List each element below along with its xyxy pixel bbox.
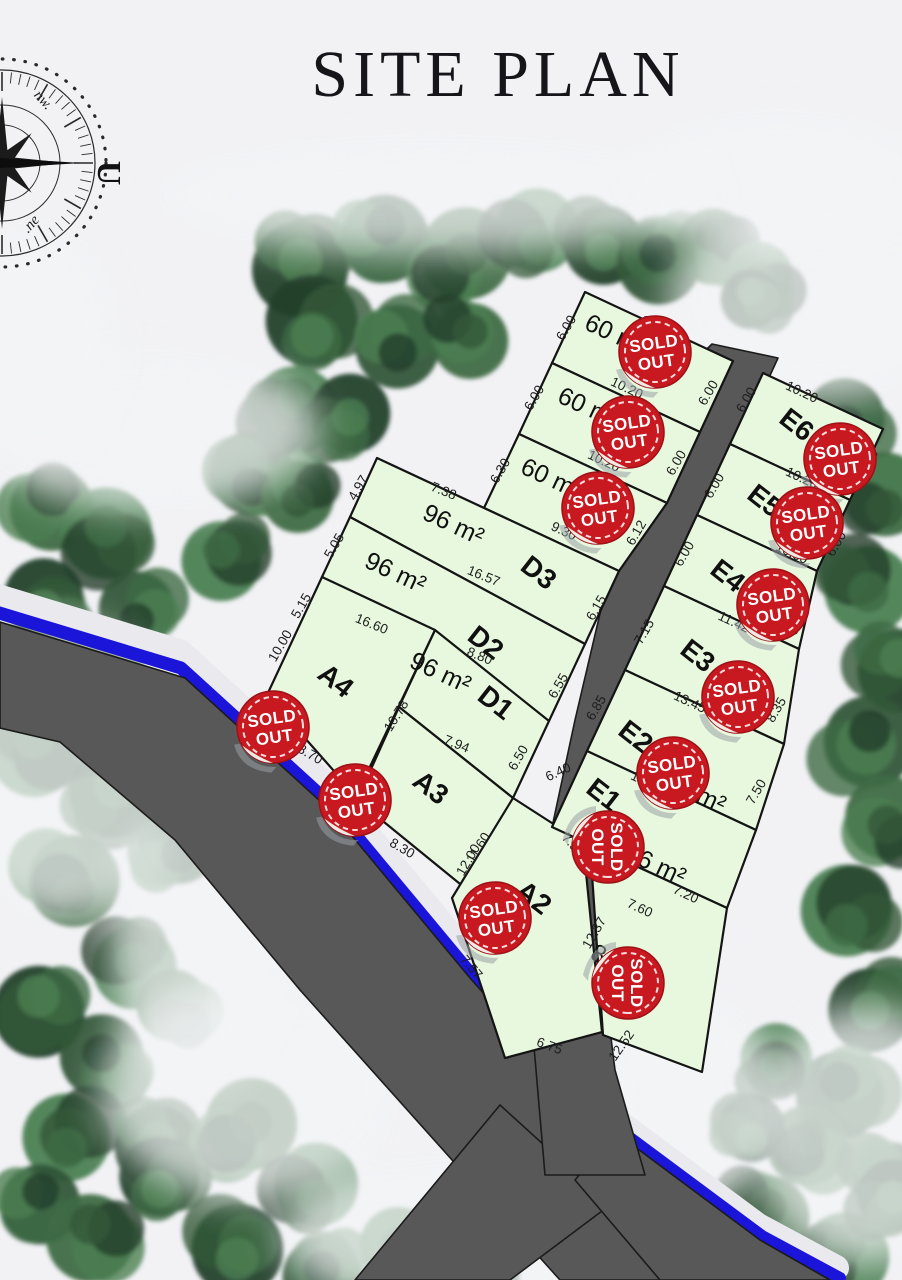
- page-title: SITE PLAN: [311, 38, 684, 111]
- site-plan-poster: SOLD OUT: [0, 0, 902, 1280]
- compass-north-label: U: [90, 161, 127, 186]
- site-plan-map: SOLD OUT: [0, 0, 902, 1280]
